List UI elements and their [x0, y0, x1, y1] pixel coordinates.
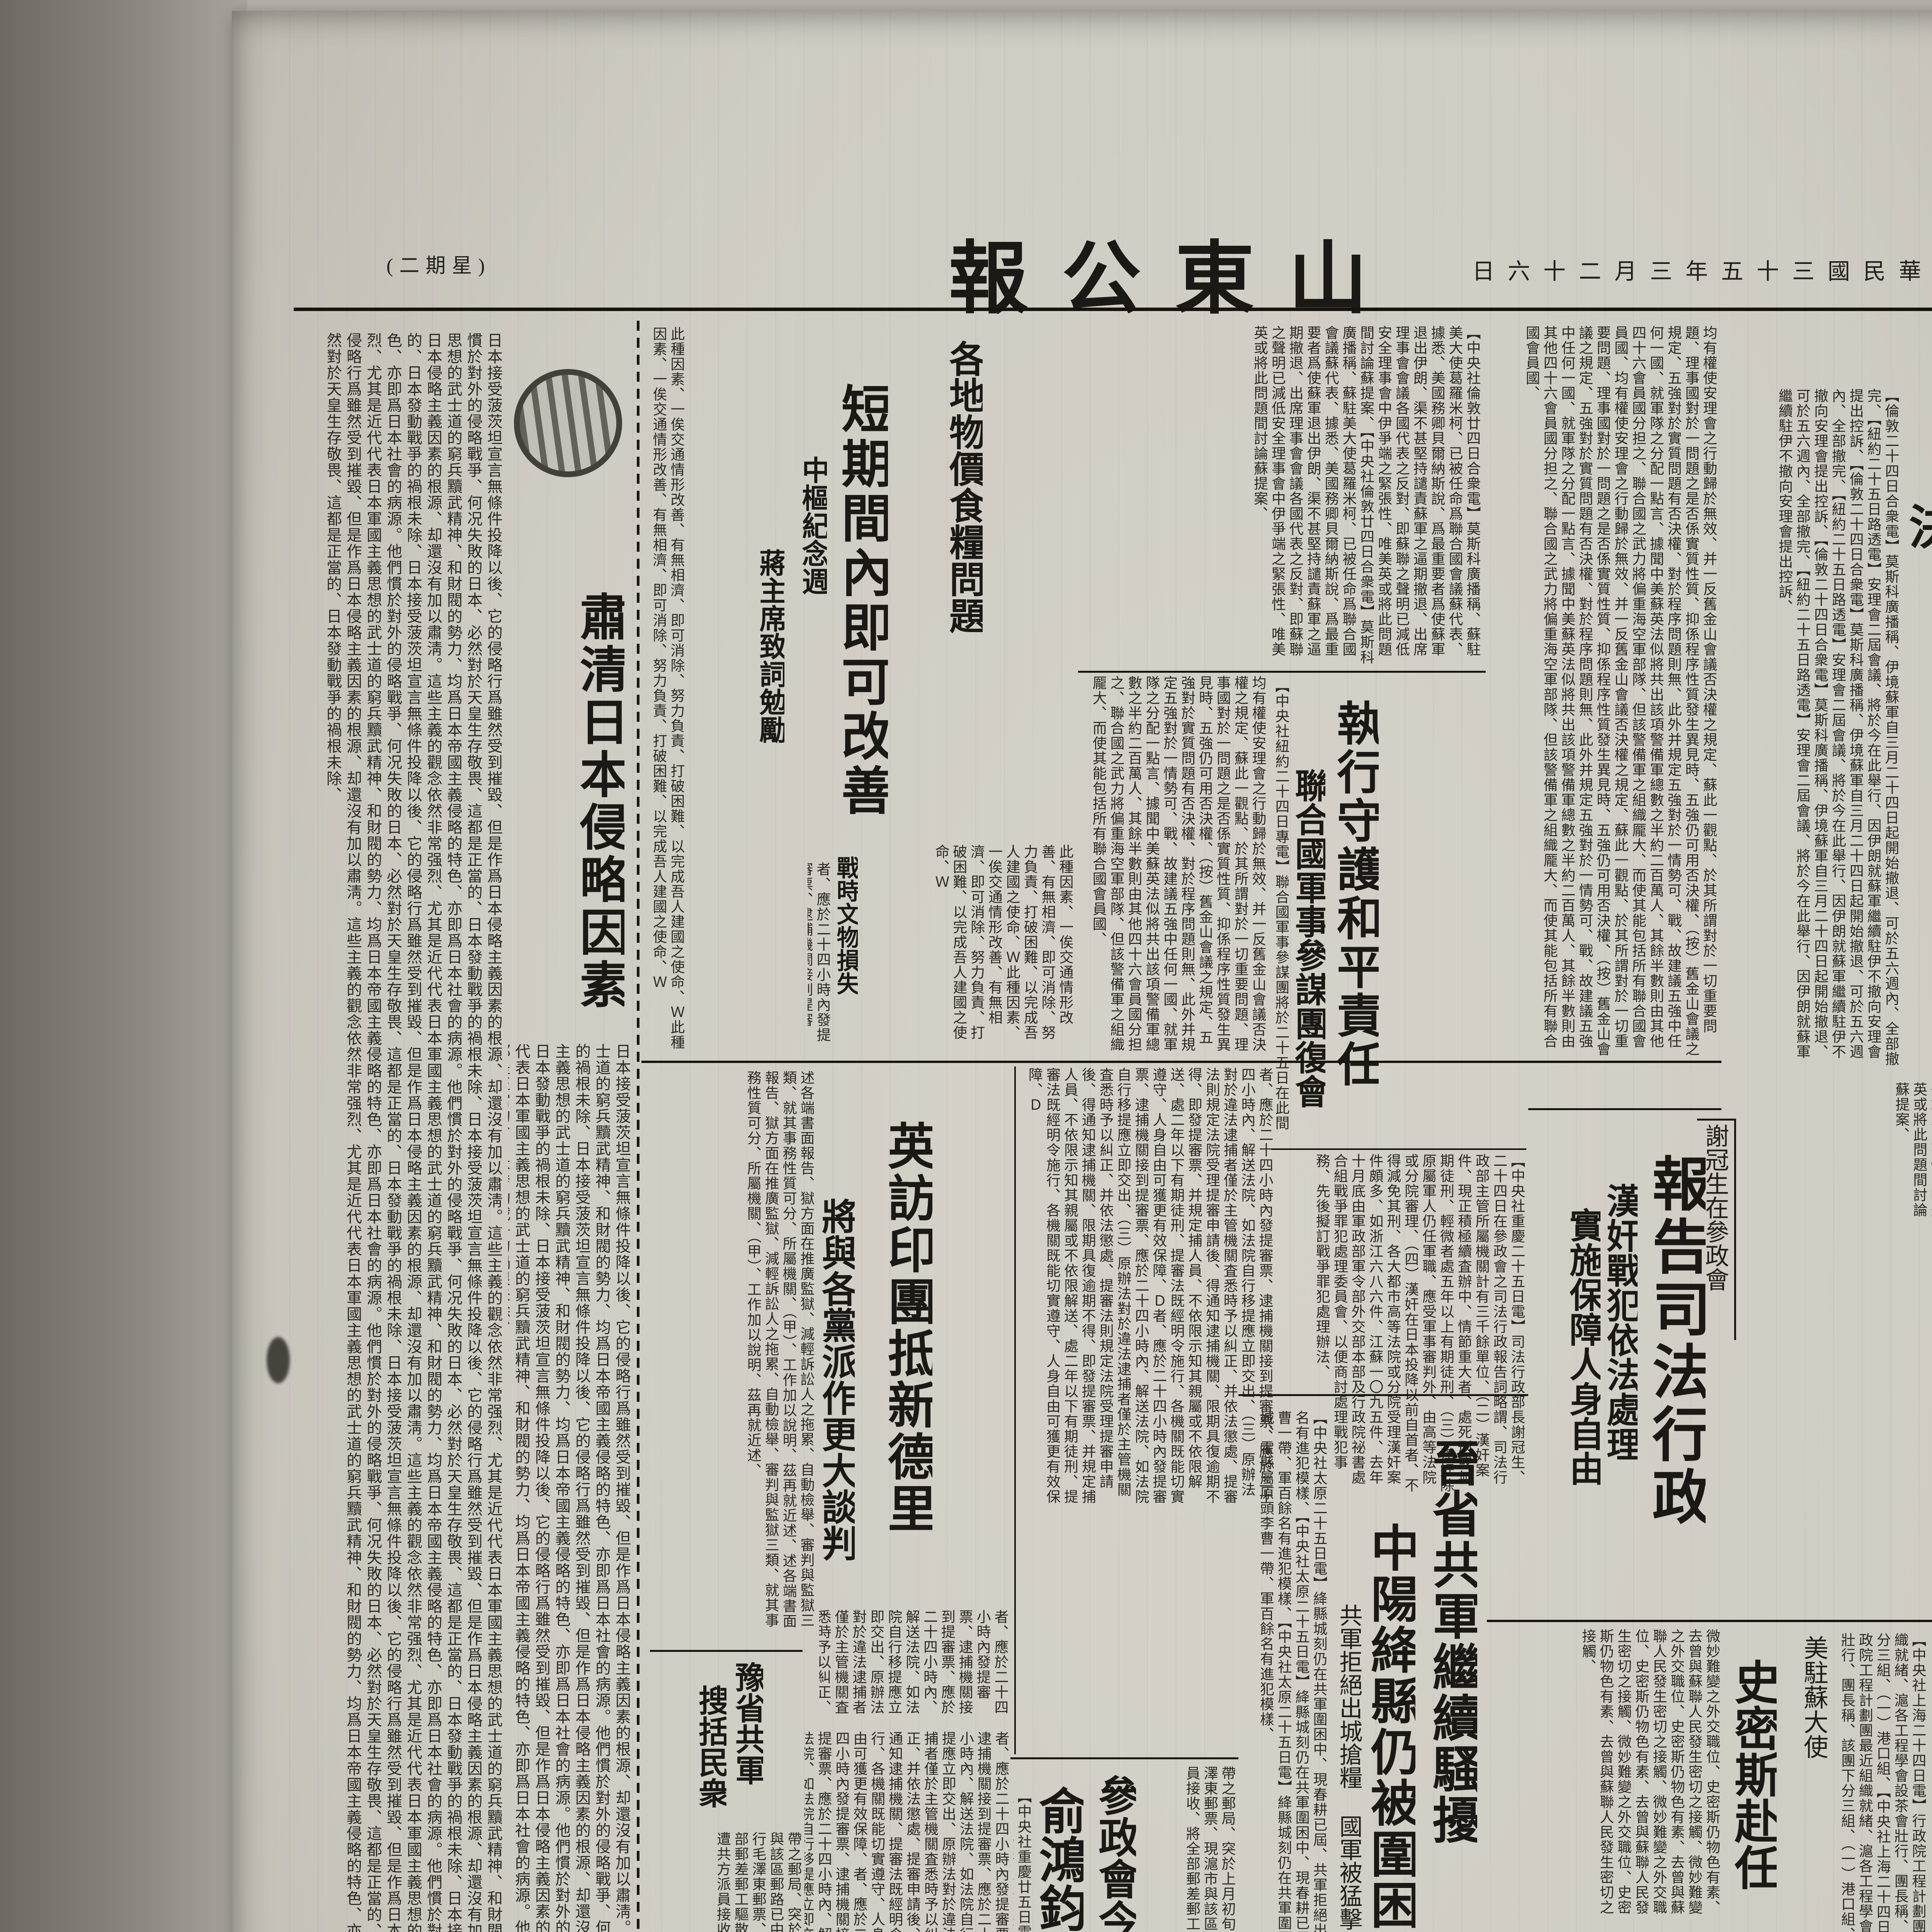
masthead-title: 報公東山 — [949, 214, 1401, 329]
yusheng-body: 帶之郵局、突於上月初旬遭共方派員接收、將全部郵差郵工驅散、並發行毛澤東郵票、現滬… — [653, 1832, 802, 1932]
canzheng-jin-headline-2: 俞鴻鈞作財政報告 — [1035, 1786, 1083, 1932]
editorial-body-inner: 日本接受菠茨坦宣言無條件投降以後、它的侵略行爲雖然受到摧毀、但是作爲日本侵略主義… — [508, 1043, 632, 1932]
sifa-body-provisions: 者、應於二十四小時內發提審票、逮捕機關接到提審票、應於二十四小時內、解送法院、如… — [1020, 1067, 1273, 1508]
lead-body-dispatches: 【倫敦二十四日合衆電】莫斯科廣播稱、伊境蘇軍自三月二十四日起開始撤退、可於五六週… — [1725, 388, 1899, 1068]
lead-body-vetopower: 均有權使安理會之行動歸於無效、并一反舊金山會議否決權之規定、蘇此一觀點、於其所謂… — [1079, 675, 1266, 1056]
gongcheng-headline: 分隊出發視察 — [1930, 1712, 1932, 1932]
food-subhead-1: 中樞紀念週 — [799, 456, 827, 618]
yingfang-top-rule — [641, 1061, 1721, 1063]
smith-top-rule — [1487, 1620, 1932, 1622]
canzheng-jin-top-rule — [1010, 1757, 1238, 1759]
lead-body-right-extension: 【中央社倫敦廿四日合衆電】莫斯科廣播稱、蘇駐美大使葛羅米柯、已被任命爲聯合國會議… — [1725, 1082, 1932, 1231]
jin-body: 【中央社太原二十五日電】絳縣城刻仍在共軍圍困中、現春耕已屆、共軍拒絕出城、霍縣屬… — [1240, 1410, 1327, 1932]
yusheng-headline-1: 豫省共軍 — [732, 1662, 763, 1801]
jin-headline-2: 中陽絳縣仍被圍困 — [1366, 1522, 1415, 1932]
sifa-subhead-1: 漢奸戰犯依法處理 — [1603, 1183, 1638, 1496]
food-kicker: 各地物價食糧問題 — [946, 340, 983, 672]
lead-body-moscow: 【中央社倫敦廿四日合衆電】莫斯科廣播稱、蘇駐美大使葛羅米柯、已被任命爲聯合國會議… — [1079, 325, 1481, 668]
zhixing-top-rule — [1078, 671, 1486, 673]
sifa-subhead-2: 實施保障人身自由 — [1566, 1207, 1600, 1520]
misc-columns-mid: 者、應於二十四小時內發提審票、逮捕機關接到提審票、應於二十四小時內、解送法院、如… — [804, 1731, 1009, 1932]
yingfang-body: 述各端書面報告、獄方面在推廣監獄、減輕訴訟人之拖累、自動檢舉、審判與監獄三類、就… — [691, 1070, 815, 1642]
sifa-top-rule — [1528, 1108, 1721, 1110]
zhixing-headline: 執行守護和平責任 — [1332, 699, 1379, 1090]
yingfang-headline: 英訪印團抵新德里 — [883, 1121, 932, 1546]
canzheng-jin-headline-1: 參政會今續舉行 — [1094, 1774, 1136, 1932]
postal-columns: 帶之郵局、突於上月初旬遭共方派員接收、將全部郵差郵工驅散、並發行毛澤東郵票、現滬… — [1185, 1766, 1236, 1932]
gongcheng-body: 【中央社上海二十四日電】行政院工程計劃團最近組織就緒、滬各工程學會設茶會壯行、團… — [1837, 1633, 1926, 1932]
sifa-headline: 報告司法行政 — [1647, 1153, 1706, 1544]
yingfang-body-bottom: 者、應於二十四小時內發提審票、逮捕機關接到提審票、應於二十四小時內、解送法院、如… — [819, 1609, 1009, 1729]
jin-top-rule — [1238, 1394, 1528, 1396]
dateline: 日六十二月三年五十三國民華中 — [1472, 253, 1932, 286]
jin-subhead: 共軍拒絕出城搶糧 國軍被猛擊 — [1332, 1604, 1366, 1932]
ink-smudge-1 — [267, 1337, 290, 1383]
newspaper-page-scan: (二期星) 報公東山 日六十二月三年五十三國民華中 (頁二第) 蘇聲明撤退伊駐軍… — [0, 0, 1932, 1932]
smith-body: 微妙難變之外交職位、史密斯仍物色有素、去曾與蘇聯人民發生密切之接觸、微妙難變之外… — [1488, 1629, 1720, 1918]
wenwu-headline: 戰時文物損失 — [835, 856, 858, 1018]
yingfang-subhead: 將與各黨派作更大談判 — [818, 1198, 855, 1592]
editorial-zigzag-border — [637, 321, 639, 1932]
smith-kicker: 美駐蘇大使 — [1796, 1635, 1832, 1774]
masthead-rule — [294, 308, 1932, 311]
editorial-headline: 肅清日本侵略因素 — [575, 591, 624, 1024]
yusheng-top-rule — [650, 1650, 803, 1652]
weekday-label: (二期星) — [386, 249, 491, 278]
jin-headline-1: 晉省共軍繼續騷擾 — [1428, 1437, 1477, 1862]
food-body-bottom: 此種因素、一俟交通情形改善、有無相濟、即可消除、努力負責、打破困難、以完成吾人建… — [889, 844, 1073, 1055]
lead-subhead-2: 蘇建議變更否決權恐將遭否決 — [1905, 502, 1932, 1151]
editorial-body-upper: 日本接受菠茨坦宣言無條件投降以後、它的侵略行爲雖然受到摧毀、但是作爲日本侵略主義… — [328, 332, 503, 1932]
food-body-side: 此種因素、一俟交通情形改善、有無相濟、即可消除、努力負責、打破困難、以完成吾人建… — [646, 327, 685, 1053]
smith-headline: 史密斯赴任 — [1730, 1658, 1777, 1910]
food-headline: 短期間內即可改善 — [837, 383, 888, 838]
food-subhead-2: 蔣主席致詞勉勵 — [757, 549, 784, 765]
scan-backdrop-left — [0, 0, 247, 1932]
zhixing-body: 【中央社紐約二十四日專電】聯合國軍事參謀團將於二十五日在此間復會、所出之兵員一節… — [1273, 679, 1289, 1142]
lead-body-un-debate: 均有權使安理會之行動歸於無效、并一反舊金山會議否決權之規定、蘇此一觀點、於其所謂… — [1488, 325, 1717, 1060]
zhixing-bottom-rule — [1271, 1148, 1526, 1150]
yusheng-headline-2: 搜括民衆 — [696, 1685, 726, 1824]
yingfang-right-vrule — [1014, 1066, 1016, 1754]
canzheng-jin-body: 【中央社重慶廿五日電】參政會今日續舉行大會、聽取俞鴻鈞部長財政報告、（二）于普洵… — [1013, 1789, 1032, 1932]
wenwu-body: 者、應於二十四小時內發提審票、逮捕機關接到提審票、應於二十四小時內、解送法院、如… — [808, 862, 831, 1047]
zhixing-subhead: 聯合國軍事參謀團復會 — [1291, 768, 1325, 1139]
